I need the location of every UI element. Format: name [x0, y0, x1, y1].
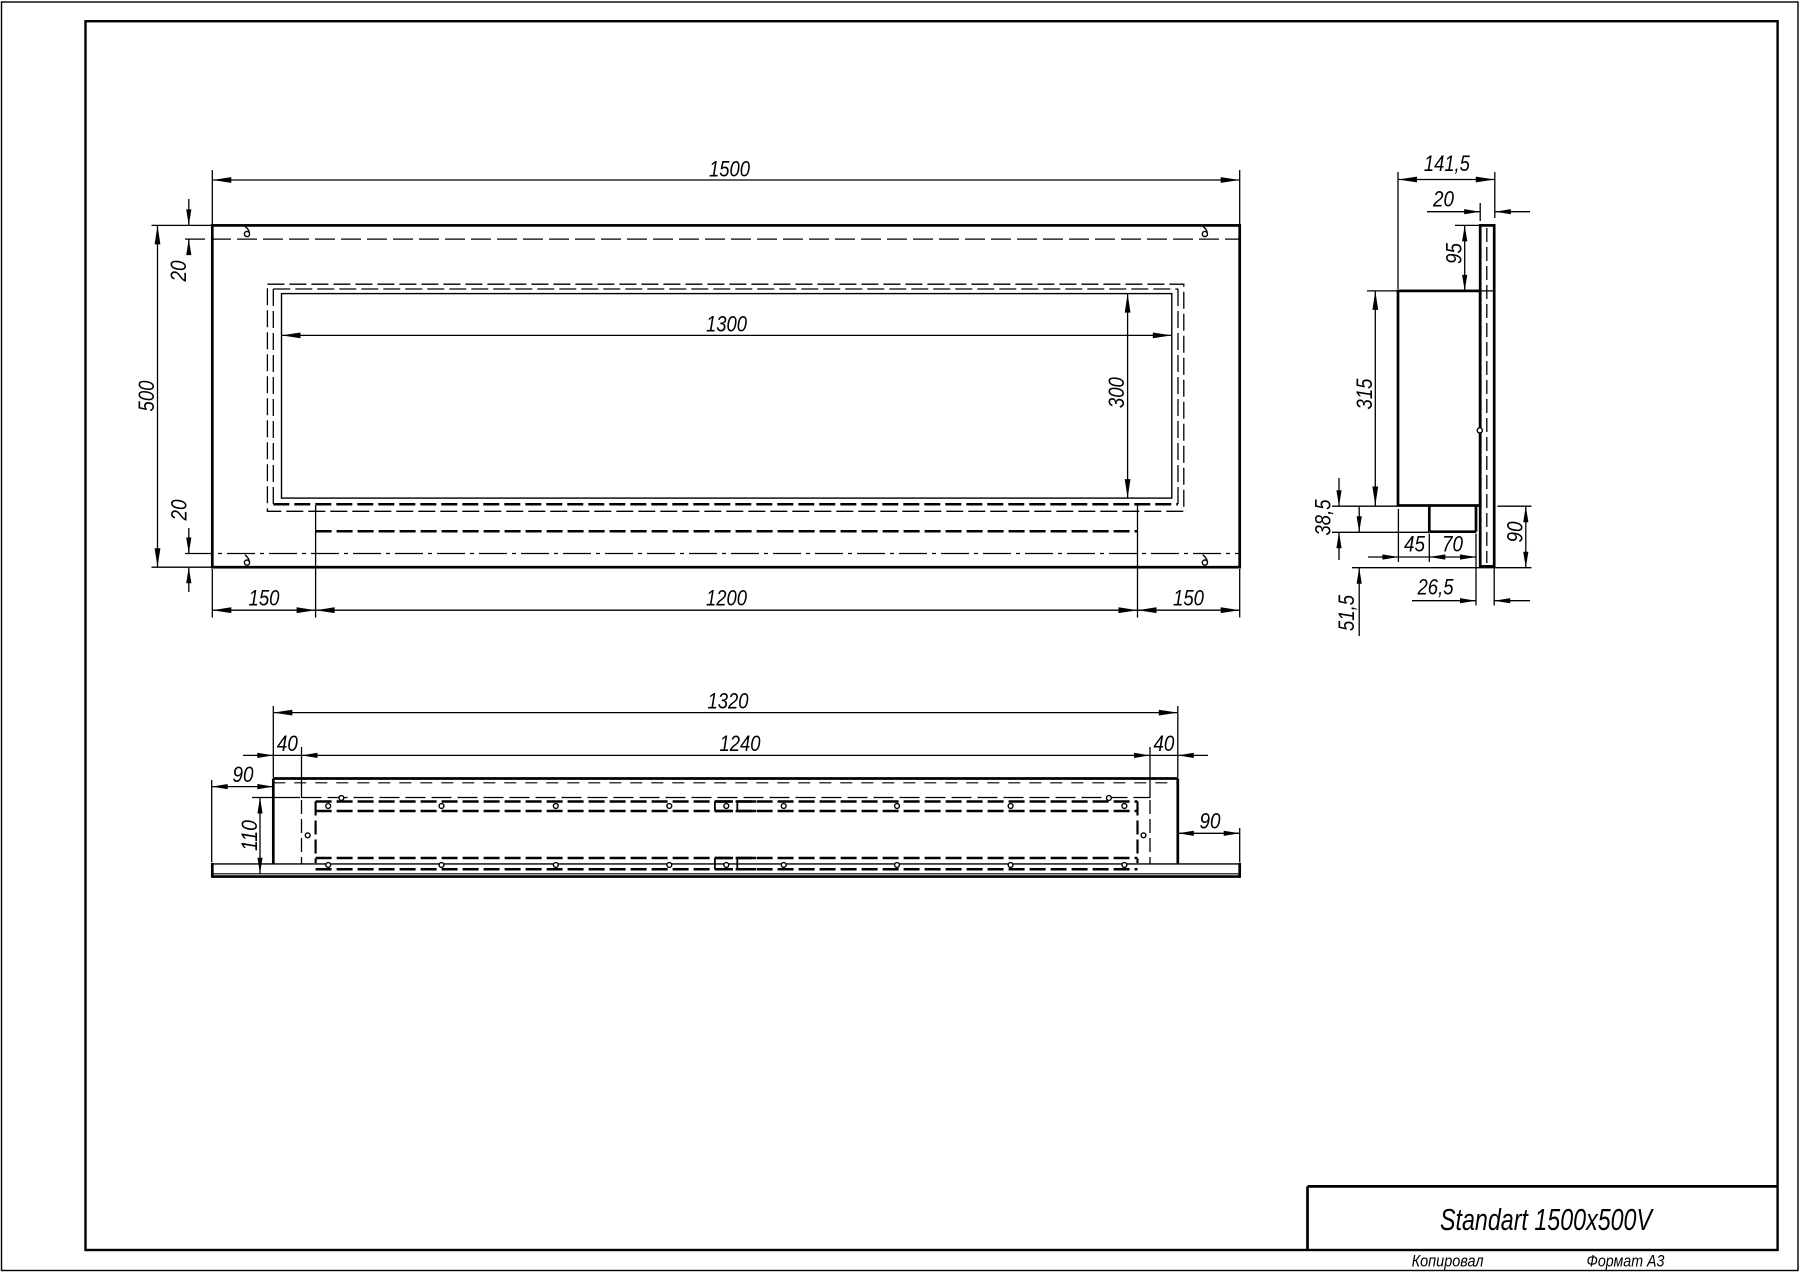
svg-text:20: 20 [166, 260, 191, 283]
svg-text:150: 150 [1173, 586, 1205, 611]
svg-text:Копировал: Копировал [1412, 1253, 1484, 1271]
svg-text:1240: 1240 [720, 731, 762, 756]
svg-text:110: 110 [237, 819, 262, 851]
svg-text:51,5: 51,5 [1334, 594, 1359, 631]
svg-text:45: 45 [1404, 532, 1426, 557]
svg-text:90: 90 [233, 762, 255, 787]
svg-text:1500: 1500 [709, 157, 751, 182]
svg-text:315: 315 [1352, 378, 1377, 410]
svg-text:90: 90 [1200, 809, 1222, 834]
svg-text:95: 95 [1442, 242, 1467, 264]
svg-text:40: 40 [1153, 731, 1175, 756]
svg-text:Формат А3: Формат А3 [1587, 1253, 1666, 1271]
svg-text:20: 20 [1432, 187, 1455, 212]
svg-text:300: 300 [1104, 376, 1129, 408]
svg-text:1300: 1300 [706, 312, 748, 337]
svg-text:38,5: 38,5 [1311, 499, 1336, 536]
svg-text:26,5: 26,5 [1417, 575, 1454, 600]
svg-text:40: 40 [277, 731, 299, 756]
svg-text:1320: 1320 [708, 689, 750, 714]
svg-text:1200: 1200 [706, 586, 748, 611]
svg-text:141,5: 141,5 [1424, 151, 1471, 176]
svg-text:20: 20 [167, 499, 192, 522]
svg-text:150: 150 [249, 586, 281, 611]
svg-text:90: 90 [1503, 521, 1528, 543]
svg-text:70: 70 [1442, 532, 1464, 557]
svg-text:500: 500 [134, 380, 159, 412]
svg-text:Standart 1500x500V: Standart 1500x500V [1440, 1202, 1654, 1237]
